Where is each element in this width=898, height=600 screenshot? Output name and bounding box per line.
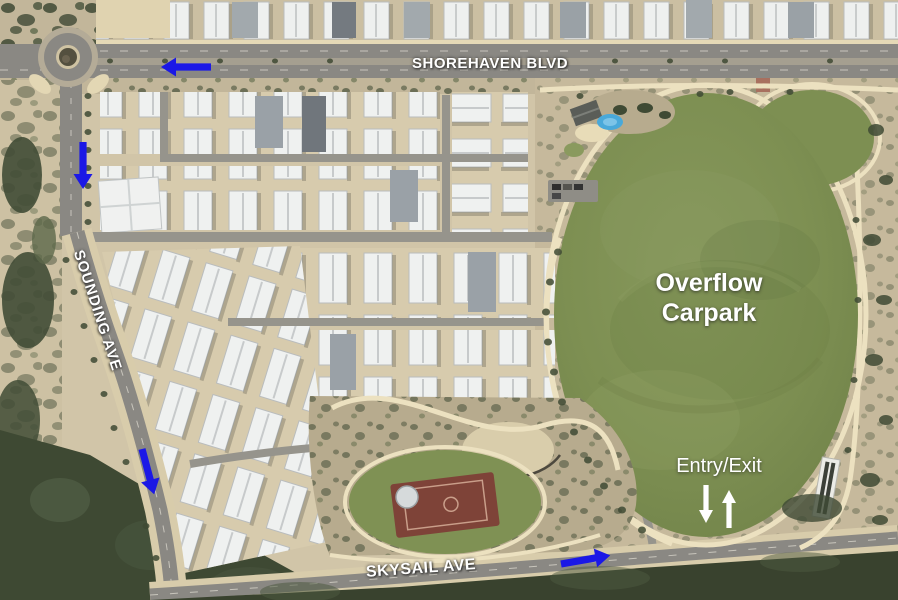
shade-dome	[396, 486, 418, 508]
entry-exit-label: Entry/Exit	[676, 455, 762, 478]
corner-house	[98, 177, 161, 233]
overflow-carpark-label-line1: Overflow	[656, 268, 763, 298]
small-carpark	[548, 180, 598, 202]
court-area	[345, 447, 545, 557]
upper-block-row1	[100, 92, 440, 154]
aerial-map: SHOREHAVEN BLVD SOUNDING AVE SKYSAIL AVE…	[0, 0, 898, 600]
top-housing-strip	[0, 0, 898, 44]
middle-block-row2	[300, 330, 555, 398]
satellite-imagery	[0, 0, 898, 600]
overflow-carpark-label: Overflow Carpark	[656, 268, 763, 328]
street-label-shorehaven: SHOREHAVEN BLVD	[412, 55, 568, 72]
overflow-carpark-label-line2: Carpark	[656, 298, 763, 328]
